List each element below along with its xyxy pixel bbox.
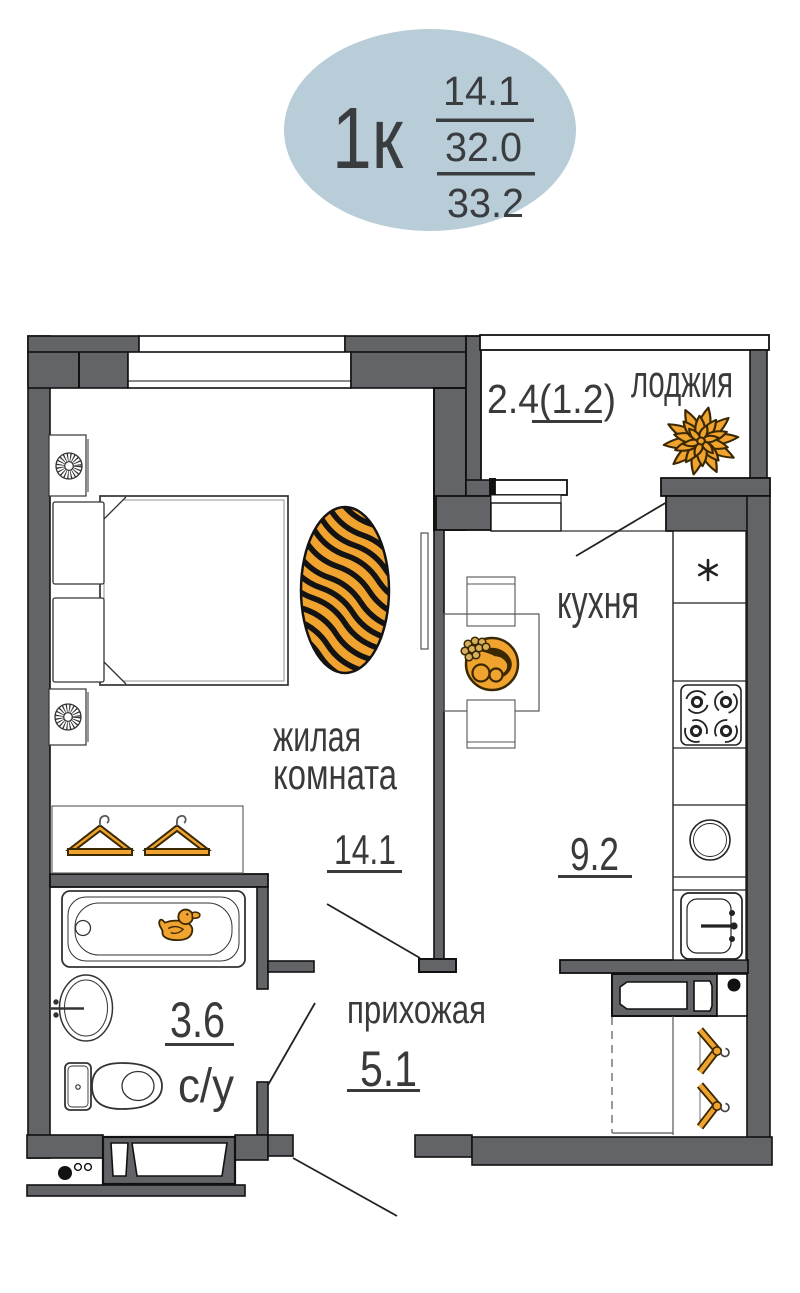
svg-text:32.0: 32.0 bbox=[445, 124, 522, 170]
svg-text:2.4(1.2): 2.4(1.2) bbox=[487, 376, 616, 422]
svg-text:комната: комната bbox=[273, 751, 397, 799]
svg-text:прихожая: прихожая bbox=[347, 988, 486, 1032]
svg-text:9.2: 9.2 bbox=[570, 828, 619, 880]
svg-text:5.1: 5.1 bbox=[360, 1041, 417, 1097]
svg-text:14.1: 14.1 bbox=[334, 826, 396, 873]
svg-text:14.1: 14.1 bbox=[443, 68, 520, 114]
svg-text:33.2: 33.2 bbox=[447, 180, 524, 226]
svg-text:с/у: с/у bbox=[178, 1060, 234, 1113]
svg-text:1к: 1к bbox=[332, 90, 404, 187]
svg-text:лоджия: лоджия bbox=[631, 356, 733, 407]
svg-text:3.6: 3.6 bbox=[170, 992, 225, 1048]
svg-text:кухня: кухня bbox=[557, 575, 639, 628]
